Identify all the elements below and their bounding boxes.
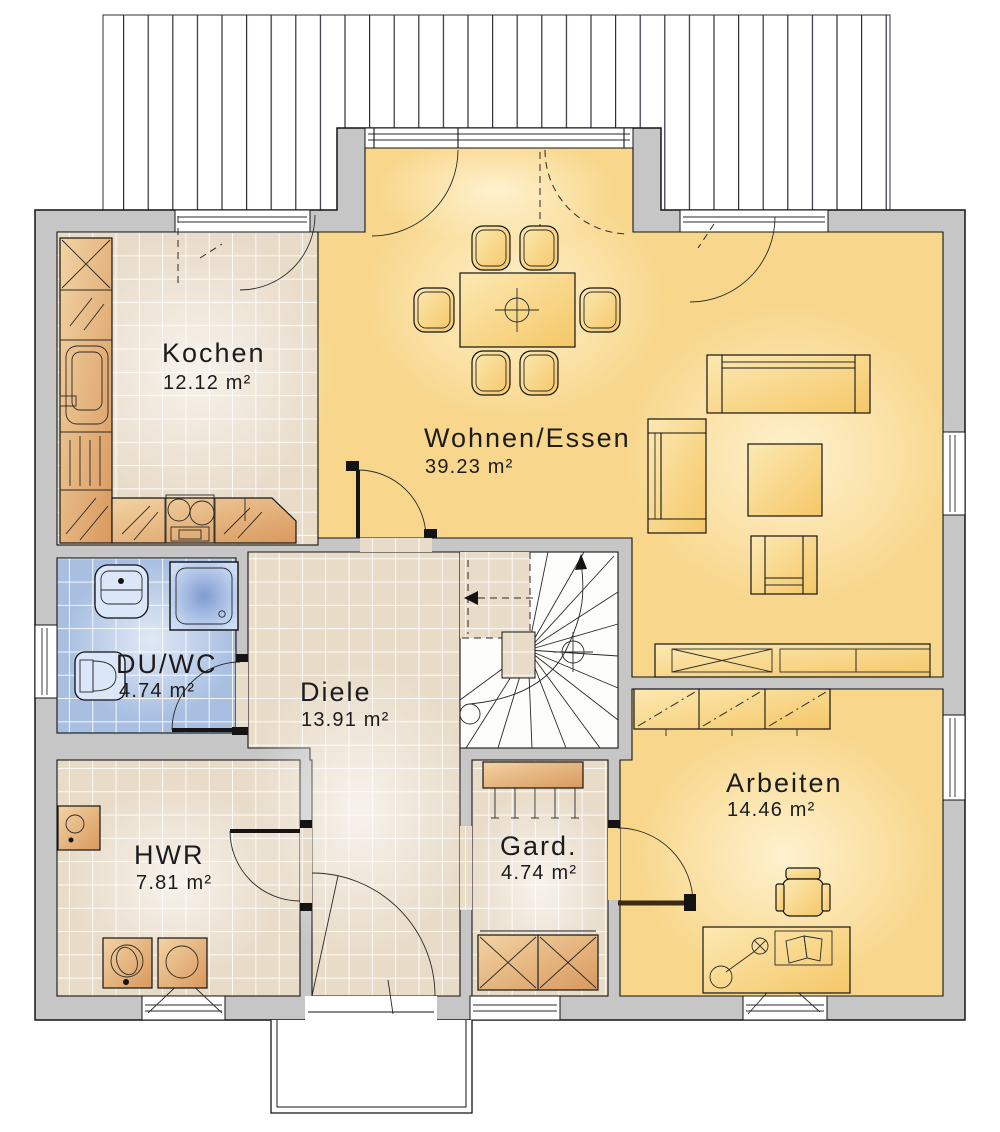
window-kitchen-top bbox=[175, 210, 310, 232]
window-living-right bbox=[943, 432, 965, 515]
room-label-du-wc: DU/WC bbox=[116, 649, 217, 679]
room-area-gard: 4.74 m² bbox=[501, 862, 577, 884]
room-area-arbeiten: 14.46 m² bbox=[727, 799, 816, 821]
sideboard bbox=[655, 644, 930, 677]
room-label-arbeiten: Arbeiten bbox=[726, 768, 843, 798]
dryer bbox=[158, 938, 207, 988]
room-label-wohnen-essen: Wohnen/Essen bbox=[424, 423, 631, 453]
room-area-kochen: 12.12 m² bbox=[163, 372, 252, 394]
coffee-table bbox=[748, 444, 822, 516]
room-label-gard: Gard. bbox=[500, 831, 578, 861]
shower bbox=[170, 562, 238, 630]
room-area-diele: 13.91 m² bbox=[301, 709, 390, 731]
room-area-hwr: 7.81 m² bbox=[136, 872, 212, 894]
room-label-diele: Diele bbox=[300, 677, 372, 707]
room-area-du-wc: 4.74 m² bbox=[119, 680, 195, 702]
office-wardrobe bbox=[634, 689, 830, 736]
utility-sink bbox=[58, 806, 100, 850]
room-label-kochen: Kochen bbox=[162, 338, 266, 368]
window-living-top bbox=[680, 210, 828, 232]
window-bay-front bbox=[365, 128, 633, 148]
bathroom-sink bbox=[95, 565, 148, 618]
armchair bbox=[751, 536, 817, 594]
window-gard-bottom bbox=[470, 996, 560, 1020]
floor-plan: Kochen 12.12 m² Wohnen/Essen 39.23 m² DU… bbox=[0, 0, 1000, 1132]
room-label-hwr: HWR bbox=[134, 840, 204, 870]
sofa-large bbox=[707, 355, 870, 413]
floor-plan-drawing: Kochen 12.12 m² Wohnen/Essen 39.23 m² DU… bbox=[0, 0, 1000, 1132]
window-duwc-left bbox=[35, 625, 57, 698]
desk bbox=[703, 927, 850, 993]
washing-machine bbox=[103, 938, 152, 988]
sofa-small bbox=[648, 419, 706, 533]
window-arbeiten-right bbox=[943, 715, 965, 800]
entrance-porch bbox=[271, 1020, 472, 1113]
room-area-wohnen-essen: 39.23 m² bbox=[425, 456, 514, 478]
gard-cabinet bbox=[478, 931, 598, 990]
